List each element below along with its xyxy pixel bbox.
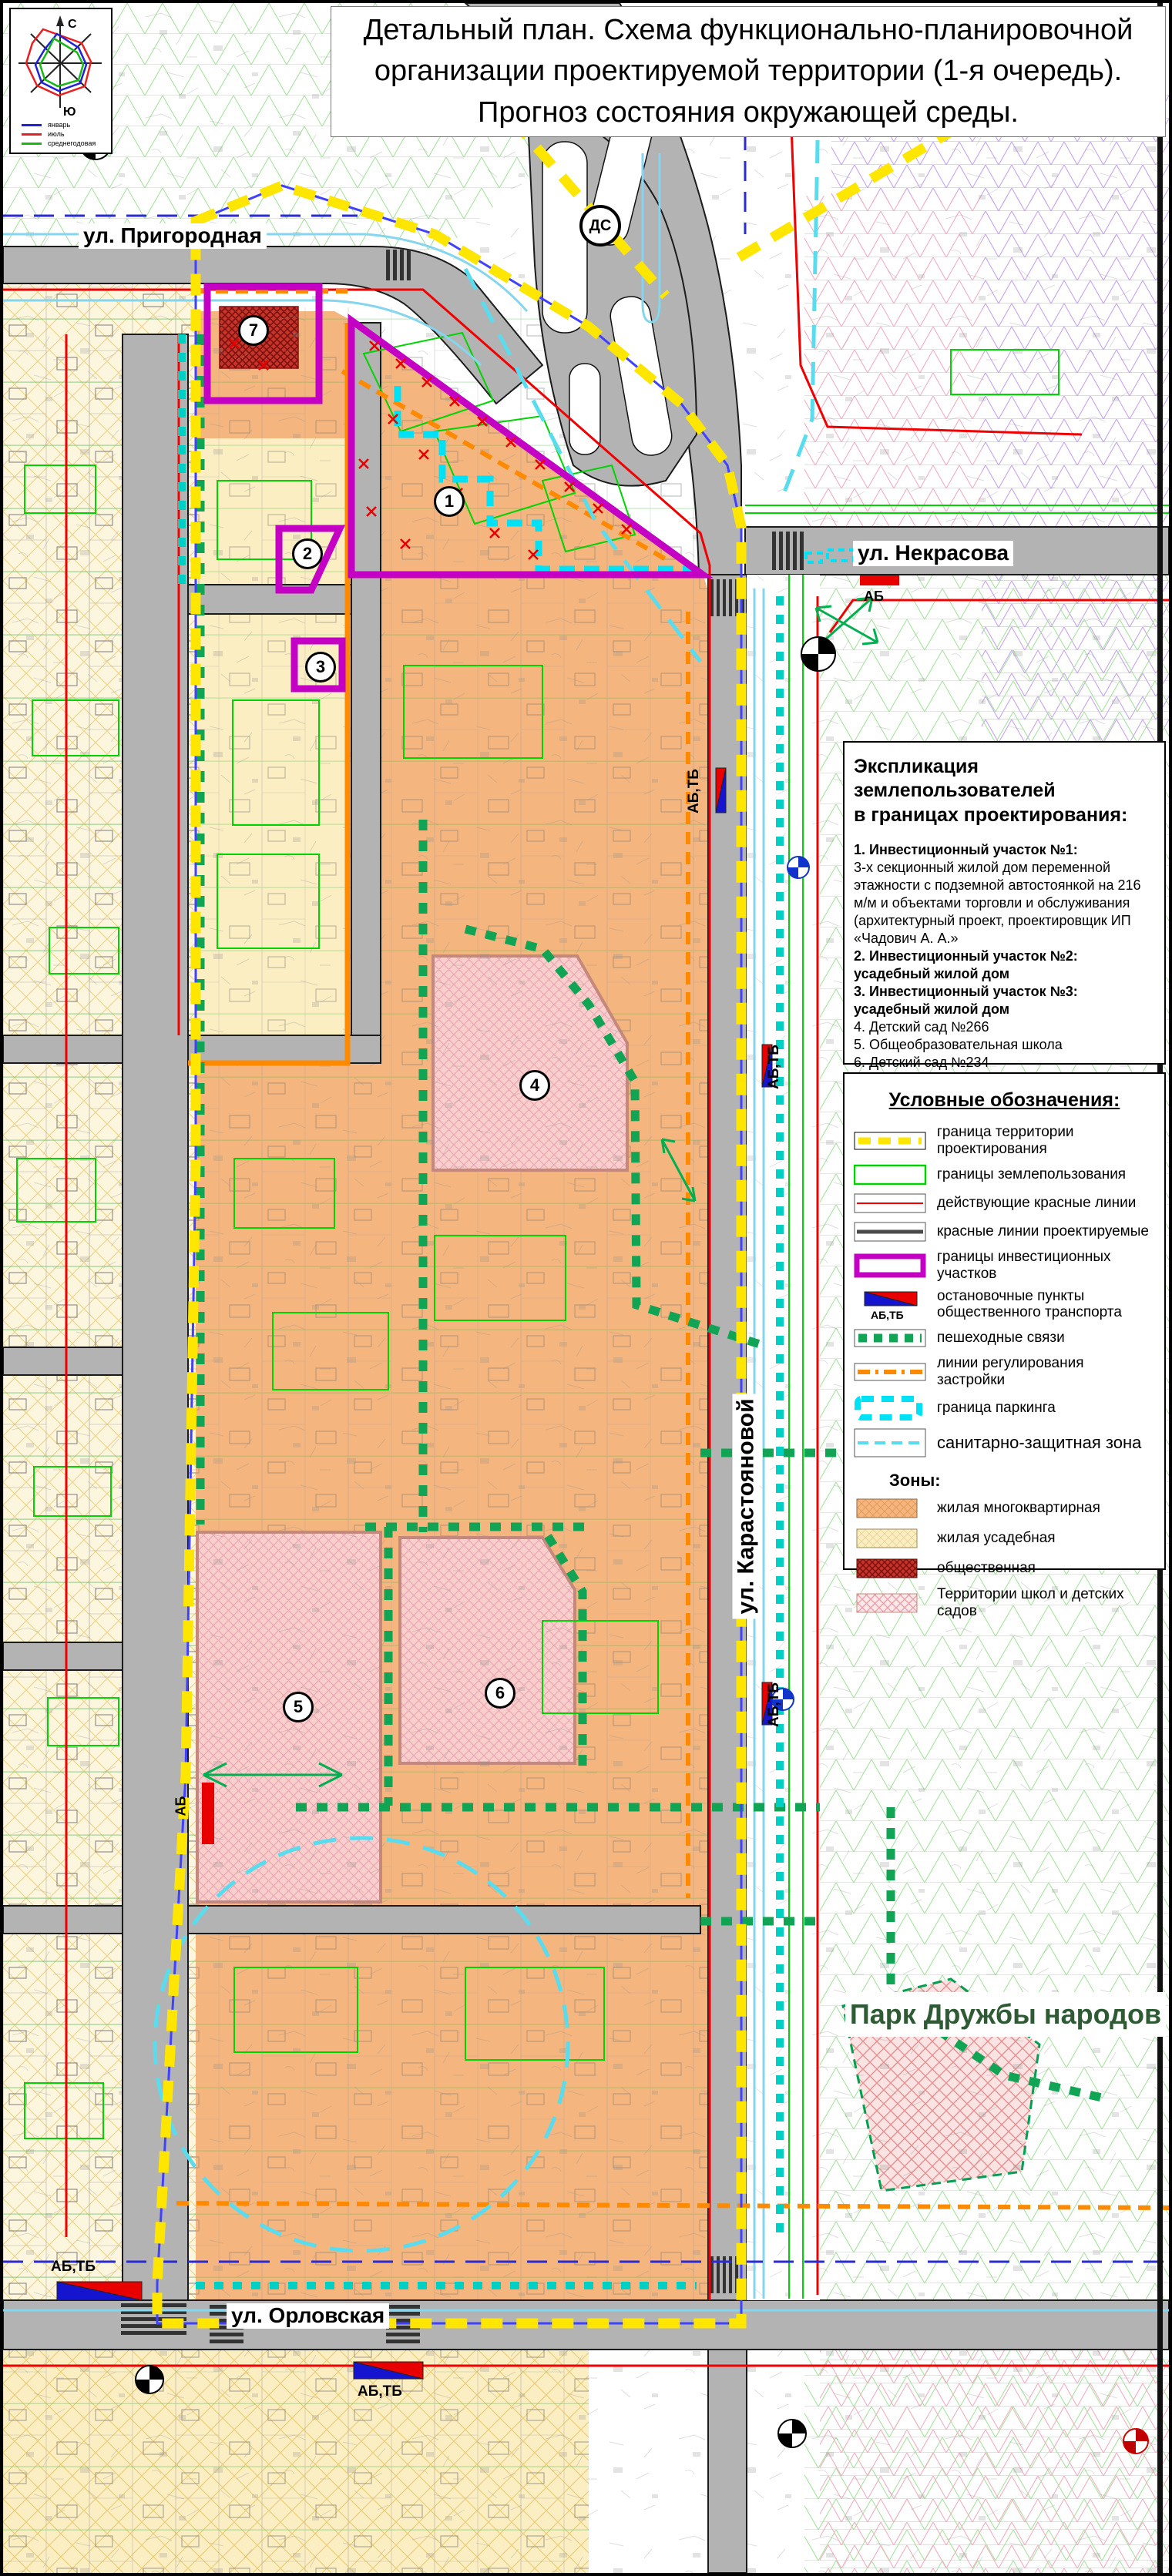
july-label: июль — [48, 130, 65, 138]
explication-item: 3. Инвестиционный участок №3: усадебный … — [854, 983, 1155, 1018]
compass-south-label: Ю — [63, 106, 76, 117]
wind-rose-panel: С Ю январь июль среднегодовая — [9, 8, 112, 154]
street-label-orlovskaya: ул. Орловская — [227, 2303, 389, 2329]
site-marker-7: 7 — [238, 315, 269, 346]
zone-row-multiapartment: жилая многоквартирная — [854, 1496, 1155, 1521]
transport-stop-label-vert: АБ,ТБ — [686, 769, 703, 813]
ab-tb-flag — [354, 2362, 423, 2379]
bus-stop-label-ab-vert: АБ — [173, 1796, 189, 1816]
ab-tb-flag — [57, 2282, 142, 2300]
investment-boundaries-icon — [854, 1253, 928, 1279]
legend-row-regulation: линии регулирования застройки — [854, 1355, 1155, 1389]
street-label-nekrasova: ул. Некрасова — [853, 541, 1013, 566]
legend-row-parking: граница паркинга — [854, 1394, 1155, 1422]
explication-heading-line1: Экспликация землепользователей — [854, 756, 1056, 801]
title-line-3: Прогноз состояния окружающей среды. — [478, 92, 1019, 133]
projected-red-lines-icon — [854, 1220, 928, 1243]
zone-row-public: общественная — [854, 1556, 1155, 1581]
zone-multiapartment-icon — [854, 1496, 928, 1521]
title-line-1: Детальный план. Схема функционально-план… — [364, 10, 1133, 51]
site-marker-5: 5 — [283, 1692, 314, 1722]
explication-heading: Экспликация землепользователей в граница… — [854, 755, 1155, 827]
site-marker-2: 2 — [292, 538, 323, 569]
zones-heading: Зоны: — [889, 1471, 1155, 1491]
zone-schools-icon — [854, 1591, 928, 1615]
street-label-prigorodnaya: ул. Пригородная — [79, 223, 267, 249]
site-marker-1: 1 — [434, 486, 465, 517]
zone-public-icon — [854, 1556, 928, 1581]
explication-item: 1. Инвестиционный участок №1: — [854, 841, 1155, 859]
transport-stops-icon: АБ,ТБ — [854, 1287, 928, 1321]
detailed-plan-map: Детальный план. Схема функционально-план… — [0, 0, 1172, 2576]
existing-red-lines-icon — [854, 1192, 928, 1215]
transport-stop-label: АБ,ТБ — [358, 2383, 402, 2400]
site-marker-6: 6 — [485, 1678, 515, 1709]
legend-heading: Условные обозначения: — [854, 1089, 1155, 1112]
annual-label: среднегодовая — [48, 139, 96, 147]
legend-panel: Условные обозначения: граница территории… — [843, 1072, 1166, 1570]
marker-ds: ДС — [579, 205, 621, 247]
transport-stops-caption: АБ,ТБ — [871, 1309, 904, 1321]
legend-row-investment: границы инвестиционных участков — [854, 1249, 1155, 1283]
january-line-icon — [22, 124, 42, 126]
territory-boundary-icon — [854, 1129, 928, 1152]
sanitary-zone-icon — [854, 1427, 928, 1458]
internal-road-vertical — [351, 323, 381, 1063]
wind-rose-legend-row: среднегодовая — [22, 139, 111, 147]
site-marker-4: 4 — [519, 1070, 550, 1101]
legend-row-territory: граница территории проектирования — [854, 1124, 1155, 1158]
explication-panel: Экспликация землепользователей в граница… — [843, 741, 1166, 1065]
transport-stop-label-vert: АБ,ТБ — [766, 1045, 783, 1089]
title-block: Детальный план. Схема функционально-план… — [331, 6, 1166, 137]
explication-item: 5. Общеобразовательная школа — [854, 1036, 1155, 1054]
explication-item: 3-х секционный жилой дом переменной этаж… — [854, 859, 1155, 948]
zone-usadebnaya-icon — [854, 1526, 928, 1551]
legend-row-pedestrian: пешеходные связи — [854, 1327, 1155, 1350]
street-label-karastoyanovoy: ул. Карастояновой — [733, 1394, 760, 1619]
title-line-2: организации проектируемой территории (1-… — [374, 51, 1122, 92]
site-marker-3: 3 — [305, 652, 336, 683]
legend-row-existing-red: действующие красные линии — [854, 1192, 1155, 1215]
transport-stop-label-vert: АБ,ТБ — [766, 1682, 783, 1727]
compass-north-label: С — [68, 18, 77, 31]
wind-rose-legend-row: январь — [22, 121, 111, 129]
explication-item: 6. Детский сад №234 — [854, 1054, 1155, 1072]
zone-row-schools: Территории школ и детских садов — [854, 1586, 1155, 1620]
wind-rose-legend-row: июль — [22, 130, 111, 138]
annual-line-icon — [22, 143, 42, 145]
explication-heading-line2: в границах проектирования: — [854, 804, 1127, 826]
landuse-boundary-icon — [854, 1163, 928, 1186]
legend-row-sanitary: санитарно-защитная зона — [854, 1427, 1155, 1458]
ab-tb-flag — [716, 768, 726, 813]
park-label: Парк Дружбы народов — [845, 1992, 1166, 2037]
explication-item: 4. Детский сад №266 — [854, 1018, 1155, 1036]
regulation-lines-icon — [854, 1360, 928, 1384]
north-arrow-icon — [56, 15, 64, 26]
legend-row-transport: АБ,ТБ остановочные пункты общественного … — [854, 1287, 1155, 1321]
july-line-icon — [22, 133, 42, 136]
bus-stop-label-ab: АБ — [864, 589, 884, 605]
legend-row-projected-red: красные линии проектируемые — [854, 1220, 1155, 1243]
parking-boundary-icon — [854, 1394, 928, 1422]
pedestrian-links-icon — [854, 1327, 928, 1350]
january-label: январь — [48, 121, 70, 129]
explication-item: 2. Инвестиционный участок №2: усадебный … — [854, 948, 1155, 983]
transport-stop-label: АБ,ТБ — [51, 2259, 96, 2276]
wind-rose-diagram: С Ю — [11, 9, 111, 117]
zone-row-usadebnaya: жилая усадебная — [854, 1526, 1155, 1551]
legend-row-landuse: границы землепользования — [854, 1163, 1155, 1186]
